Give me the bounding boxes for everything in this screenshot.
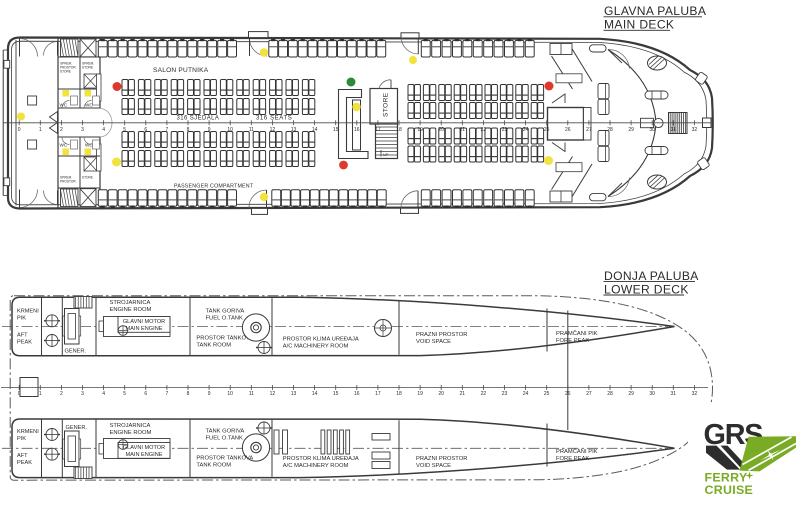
svg-text:7: 7 [166,127,169,133]
svg-text:12: 12 [270,127,276,133]
svg-text:26: 26 [565,127,571,133]
svg-text:GENER.: GENER. [65,349,87,355]
svg-text:2: 2 [60,391,63,397]
svg-text:AFT: AFT [17,453,28,459]
svg-text:29: 29 [628,391,634,397]
svg-text:STROJARNICA: STROJARNICA [110,300,151,306]
svg-text:PROSTOR TANKOVA: PROSTOR TANKOVA [196,336,253,342]
svg-text:31: 31 [671,391,677,397]
svg-text:3: 3 [81,127,84,133]
svg-text:21: 21 [460,391,466,397]
svg-text:19: 19 [417,391,423,397]
svg-text:25: 25 [544,127,550,133]
svg-text:6: 6 [144,391,147,397]
svg-text:PASSENGER COMPARTMENT: PASSENGER COMPARTMENT [174,184,254,190]
svg-text:A/C MACHINERY ROOM: A/C MACHINERY ROOM [283,463,349,469]
svg-text:TANK ROOM: TANK ROOM [196,463,231,469]
svg-text:ENGINE ROOM: ENGINE ROOM [110,430,152,436]
svg-text:13: 13 [291,391,297,397]
svg-text:STORE: STORE [60,70,71,74]
svg-text:UP: UP [383,152,389,157]
svg-text:1: 1 [39,391,42,397]
svg-text:PROSTOR TANKOVA: PROSTOR TANKOVA [196,456,253,462]
svg-text:5: 5 [123,391,126,397]
svg-text:MAIN ENGINE: MAIN ENGINE [126,452,163,458]
svg-text:STORE: STORE [82,176,93,180]
svg-text:FORE PEAK: FORE PEAK [556,456,589,462]
svg-text:6: 6 [144,127,147,133]
svg-text:26: 26 [565,391,571,397]
svg-text:8: 8 [187,391,190,397]
svg-text:PRAZNI PROSTOR: PRAZNI PROSTOR [416,456,467,462]
svg-text:STORE: STORE [383,92,390,117]
svg-text:14: 14 [312,127,318,133]
svg-text:11: 11 [249,127,254,133]
svg-text:29: 29 [628,127,634,133]
svg-text:FUEL O.TANK: FUEL O.TANK [206,436,243,442]
svg-text:316 SEATS: 316 SEATS [256,116,292,122]
svg-text:30: 30 [649,127,655,133]
svg-text:GLAVNA PALUBA: GLAVNA PALUBA [604,4,707,18]
svg-text:20: 20 [438,391,444,397]
svg-text:FUEL O.TANK: FUEL O.TANK [206,316,243,322]
svg-text:9: 9 [208,391,211,397]
svg-text:21: 21 [460,127,466,133]
svg-text:WC: WC [60,143,68,148]
svg-text:17: 17 [375,127,381,133]
svg-text:GENER.: GENER. [66,425,88,431]
svg-text:PIK: PIK [17,436,26,442]
svg-text:A/C MACHINERY ROOM: A/C MACHINERY ROOM [283,344,349,350]
svg-text:PEAK: PEAK [17,340,32,346]
svg-text:STROJARNICA: STROJARNICA [110,423,151,429]
svg-text:PEAK: PEAK [17,460,32,466]
svg-text:24: 24 [523,391,529,397]
svg-text:31: 31 [671,127,677,133]
svg-text:18: 18 [396,391,402,397]
svg-text:0: 0 [18,127,21,133]
svg-text:9: 9 [208,127,211,133]
svg-text:12: 12 [270,391,276,397]
svg-text:LOWER DECK: LOWER DECK [604,282,689,296]
svg-text:13: 13 [291,127,297,133]
svg-text:27: 27 [586,127,592,133]
svg-text:AFT: AFT [17,333,28,339]
svg-text:KRMENI: KRMENI [17,429,39,435]
svg-text:PROSTOR KLIMA UREĐAJA: PROSTOR KLIMA UREĐAJA [283,337,359,343]
svg-text:GLAVNI MOTOR: GLAVNI MOTOR [123,445,165,451]
svg-text:VOID SPACE: VOID SPACE [416,463,451,469]
svg-text:ENGINE ROOM: ENGINE ROOM [110,307,152,313]
svg-text:23: 23 [502,391,508,397]
svg-text:MAIN ENGINE: MAIN ENGINE [126,326,163,332]
svg-text:FORE PEAK: FORE PEAK [556,338,589,344]
svg-text:WC: WC [85,143,93,148]
svg-text:10: 10 [227,127,233,133]
svg-text:VOID SPACE: VOID SPACE [416,339,451,345]
svg-text:CRUISE: CRUISE [705,483,754,497]
svg-text:TANK GORIVA: TANK GORIVA [206,429,245,435]
svg-text:GLAVNI MOTOR: GLAVNI MOTOR [123,319,165,325]
svg-text:11: 11 [249,391,254,397]
svg-text:20: 20 [438,127,444,133]
svg-text:28: 28 [607,127,613,133]
svg-text:PIK: PIK [17,316,26,322]
svg-text:16: 16 [354,391,360,397]
svg-text:28: 28 [607,391,613,397]
svg-text:TANK GORIVA: TANK GORIVA [206,309,245,315]
svg-text:15: 15 [333,127,339,133]
svg-text:14: 14 [312,391,318,397]
svg-text:8: 8 [187,127,190,133]
svg-text:17: 17 [375,391,381,397]
svg-text:27: 27 [586,391,592,397]
svg-text:STORE: STORE [82,66,93,70]
svg-text:1: 1 [39,127,42,133]
svg-text:24: 24 [523,127,529,133]
svg-text:WC: WC [85,103,93,108]
svg-text:SALON PUTNIKA: SALON PUTNIKA [153,67,209,74]
svg-text:PRAZNI PROSTOR: PRAZNI PROSTOR [416,332,467,338]
svg-text:PROSTOR: PROSTOR [60,180,76,184]
svg-text:18: 18 [396,127,402,133]
svg-text:16: 16 [354,127,360,133]
svg-text:KRMENI: KRMENI [17,309,39,315]
svg-text:10: 10 [227,391,233,397]
svg-text:23: 23 [502,127,508,133]
svg-text:7: 7 [166,391,169,397]
svg-text:19: 19 [417,127,423,133]
svg-text:5: 5 [123,127,126,133]
svg-text:PRAMČANI PIK: PRAMČANI PIK [556,330,598,337]
svg-text:3: 3 [81,391,84,397]
svg-text:32: 32 [692,127,698,133]
svg-text:15: 15 [333,391,339,397]
svg-text:4: 4 [102,391,105,397]
svg-text:316 SJEDALA: 316 SJEDALA [177,116,220,122]
svg-text:MAIN DECK: MAIN DECK [604,18,674,32]
svg-text:2: 2 [60,127,63,133]
svg-text:DONJA PALUBA: DONJA PALUBA [604,269,699,283]
svg-text:PROSTOR KLIMA UREĐAJA: PROSTOR KLIMA UREĐAJA [283,456,359,462]
svg-text:30: 30 [649,391,655,397]
svg-text:0: 0 [18,391,21,397]
svg-text:PRAMČANI PIK: PRAMČANI PIK [556,448,598,455]
svg-text:22: 22 [481,127,487,133]
svg-text:22: 22 [481,391,487,397]
svg-text:TANK ROOM: TANK ROOM [196,343,231,349]
svg-text:4: 4 [102,127,105,133]
svg-text:25: 25 [544,391,550,397]
svg-text:32: 32 [692,391,698,397]
